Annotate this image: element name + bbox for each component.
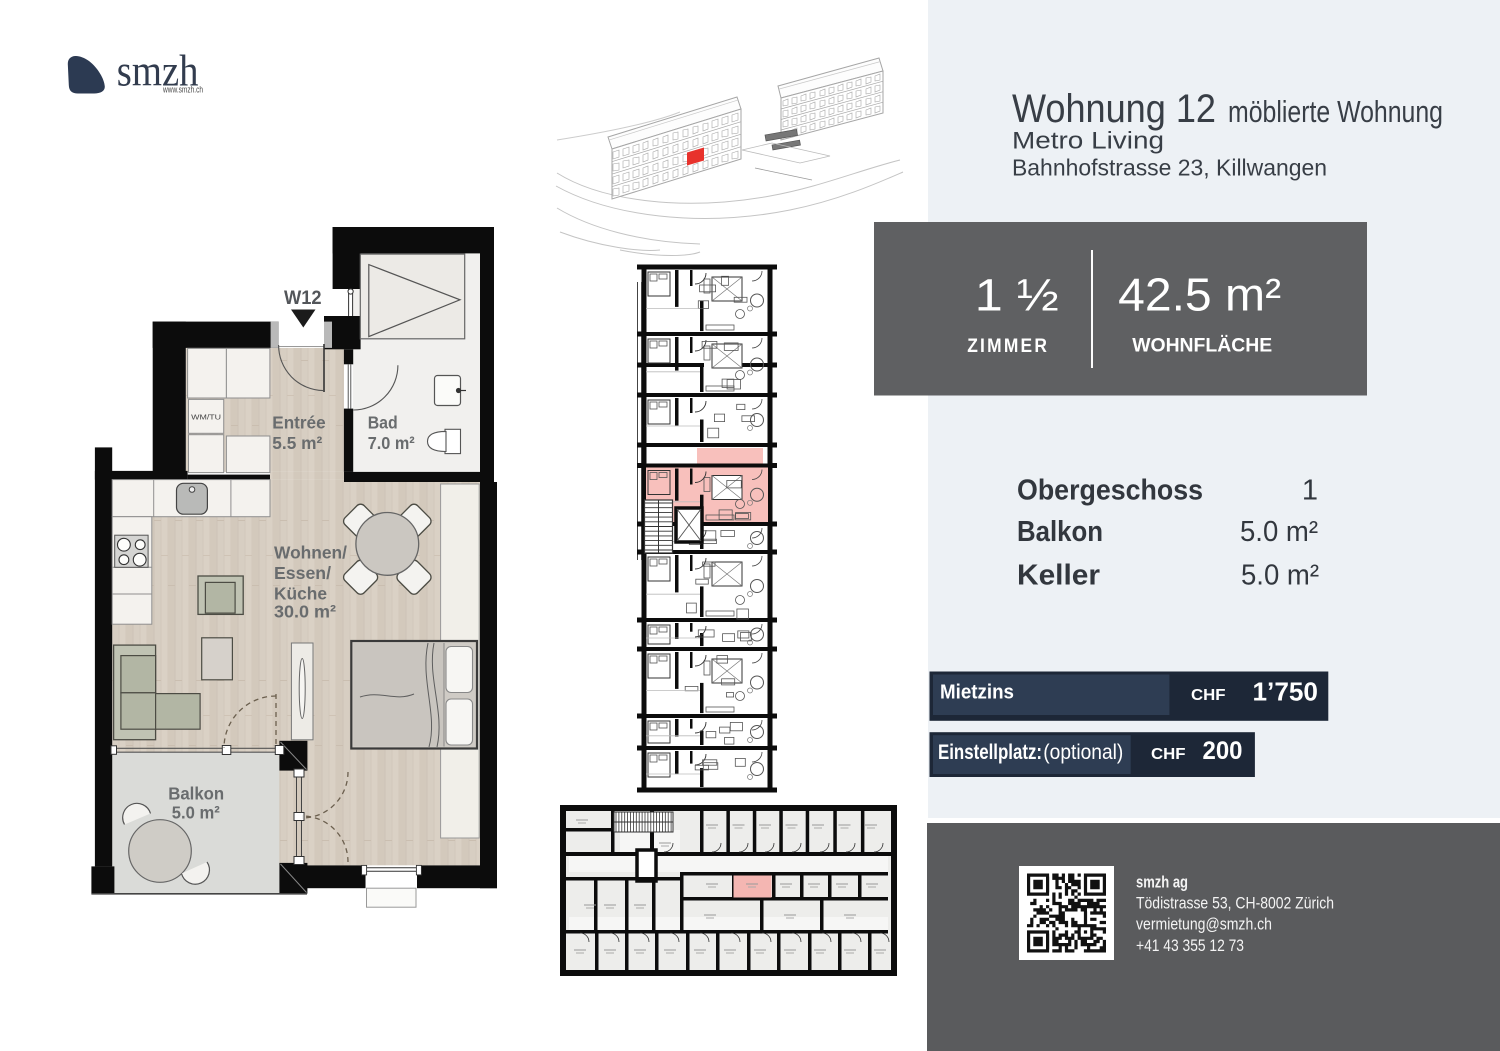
svg-text:Essen/: Essen/ [274, 563, 331, 583]
svg-text:42.5 m²: 42.5 m² [1118, 269, 1281, 321]
svg-text:5.5 m²: 5.5 m² [272, 433, 322, 453]
svg-text:Bad: Bad [368, 412, 398, 432]
svg-text:ZIMMER: ZIMMER [967, 335, 1049, 357]
svg-text:Bahnhofstrasse 23, Killwangen: Bahnhofstrasse 23, Killwangen [1012, 154, 1327, 180]
svg-text:30.0 m²: 30.0 m² [274, 602, 336, 622]
svg-text:1: 1 [1302, 475, 1318, 507]
svg-text:Entrée: Entrée [272, 412, 326, 432]
svg-text:5.0 m²: 5.0 m² [1240, 516, 1318, 548]
svg-text:WM/TU: WM/TU [191, 413, 221, 422]
svg-text:Obergeschoss: Obergeschoss [1017, 475, 1203, 507]
svg-text:7.0 m²: 7.0 m² [368, 433, 415, 453]
svg-text:5.0 m²: 5.0 m² [1241, 560, 1319, 592]
svg-text:Wohnung 12: Wohnung 12 [1012, 87, 1216, 131]
svg-text:Keller: Keller [1017, 560, 1100, 592]
svg-text:200: 200 [1203, 737, 1243, 765]
svg-text:+41 43 355 12 73: +41 43 355 12 73 [1136, 936, 1244, 955]
svg-text:W12: W12 [284, 288, 322, 309]
svg-text:5.0 m²: 5.0 m² [172, 803, 220, 823]
svg-text:CHF: CHF [1151, 746, 1186, 763]
svg-text:Balkon: Balkon [168, 784, 224, 804]
svg-text:Balkon: Balkon [1017, 516, 1103, 548]
svg-text:Einstellplatz:: Einstellplatz: [938, 741, 1042, 764]
svg-text:smzh ag: smzh ag [1136, 872, 1188, 891]
svg-text:WOHNFLÄCHE: WOHNFLÄCHE [1132, 334, 1272, 357]
svg-text:Tödistrasse 53, CH-8002 Zürich: Tödistrasse 53, CH-8002 Zürich [1136, 894, 1334, 913]
svg-text:Wohnen/: Wohnen/ [274, 542, 347, 562]
svg-text:1 ½: 1 ½ [975, 271, 1059, 321]
svg-text:vermietung@smzh.ch: vermietung@smzh.ch [1136, 915, 1272, 934]
svg-text:1’750: 1’750 [1253, 676, 1319, 706]
svg-text:(optional): (optional) [1043, 741, 1123, 764]
svg-text:CHF: CHF [1191, 687, 1226, 704]
svg-text:www.smzh.ch: www.smzh.ch [162, 85, 203, 95]
svg-text:Mietzins: Mietzins [940, 681, 1014, 704]
svg-text:Metro Living: Metro Living [1012, 128, 1164, 155]
svg-text:möblierte Wohnung: möblierte Wohnung [1228, 94, 1443, 129]
